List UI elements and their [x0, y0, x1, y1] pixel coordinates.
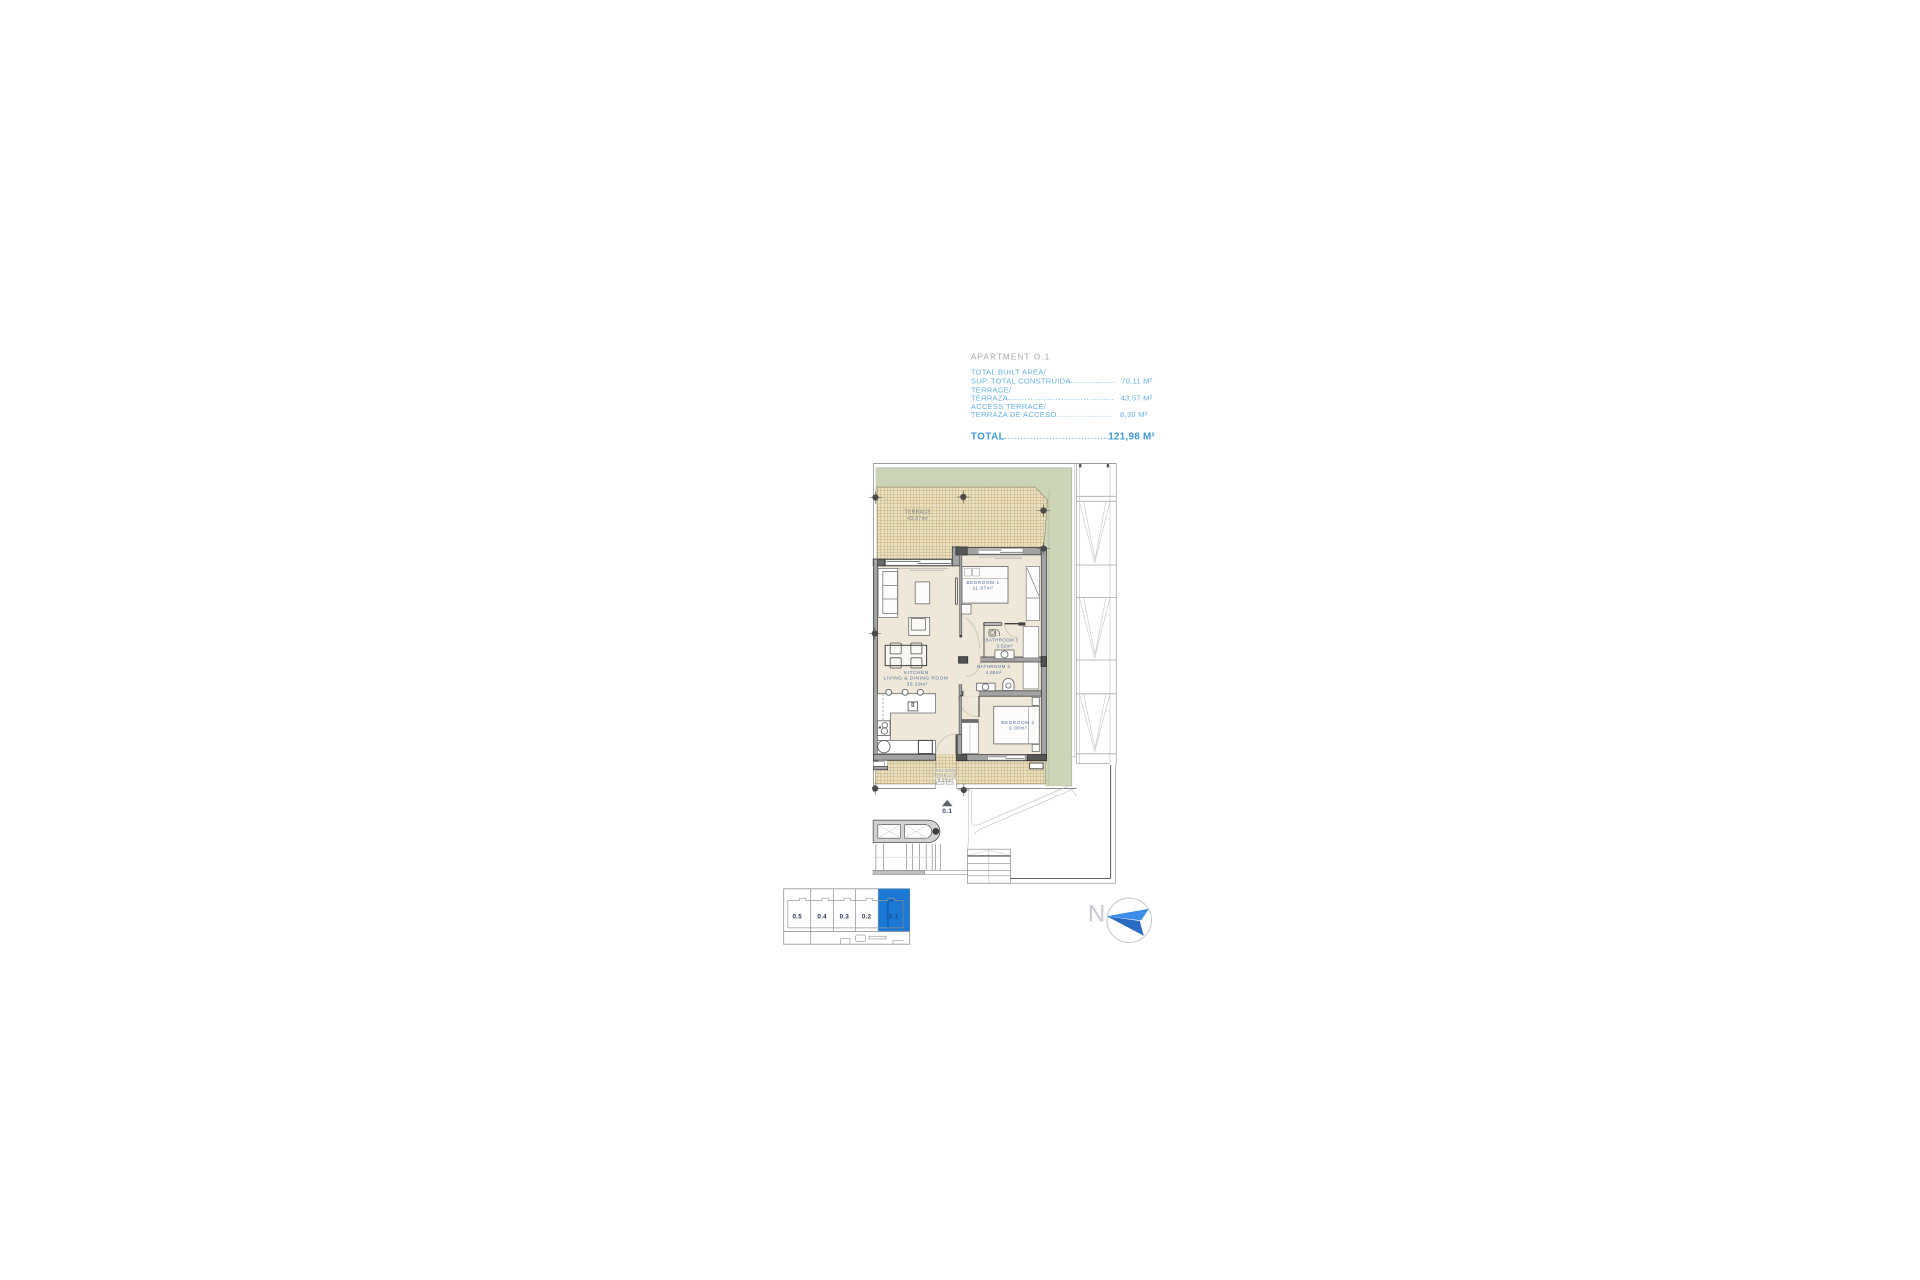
svg-text:0.1: 0.1	[942, 808, 952, 815]
svg-text:43,57 M²: 43,57 M²	[1121, 393, 1153, 402]
svg-text:KITCHEN: KITCHEN	[904, 670, 929, 676]
svg-text:121,98 M²: 121,98 M²	[1108, 431, 1155, 442]
svg-text:30.29m²: 30.29m²	[907, 682, 928, 688]
svg-text:TOTAL: TOTAL	[971, 431, 1005, 442]
svg-text:11.87m²: 11.87m²	[973, 586, 994, 592]
svg-text:43.57m²: 43.57m²	[907, 516, 928, 522]
svg-text:LIVING & DINING ROOM: LIVING & DINING ROOM	[884, 676, 949, 682]
svg-text:TOTAL BUILT AREA/: TOTAL BUILT AREA/	[971, 368, 1047, 377]
svg-text:4.65m²: 4.65m²	[986, 670, 1002, 675]
svg-text:0.5: 0.5	[792, 914, 802, 921]
svg-text:9.00m²: 9.00m²	[1009, 726, 1027, 732]
svg-text:3.52m²: 3.52m²	[996, 644, 1012, 649]
svg-text:BATHROOM 2: BATHROOM 2	[977, 664, 1010, 669]
svg-text:8.30m²: 8.30m²	[938, 777, 954, 782]
svg-text:8,30 M²: 8,30 M²	[1120, 410, 1148, 419]
svg-text:0.3: 0.3	[840, 914, 850, 921]
svg-text:BEDROOM 2: BEDROOM 2	[1001, 720, 1034, 726]
svg-text:0.4: 0.4	[817, 914, 827, 921]
svg-text:BATHROOM 1: BATHROOM 1	[985, 638, 1018, 643]
svg-text:0.1: 0.1	[889, 914, 899, 921]
svg-text:ACCESS: ACCESS	[936, 768, 956, 773]
svg-text:N: N	[1088, 901, 1105, 928]
svg-text:TERRACE: TERRACE	[904, 509, 931, 515]
svg-text:APARTMENT O.1: APARTMENT O.1	[971, 352, 1050, 361]
svg-text:TERRAZA DE ACCESO: TERRAZA DE ACCESO	[971, 410, 1057, 419]
svg-text:SUP. TOTAL CONSTRUIDA: SUP. TOTAL CONSTRUIDA	[971, 377, 1071, 386]
svg-text:BEDROOM 1: BEDROOM 1	[966, 580, 999, 586]
svg-text:0.2: 0.2	[862, 914, 872, 921]
svg-text:70,11 M²: 70,11 M²	[1121, 377, 1153, 386]
